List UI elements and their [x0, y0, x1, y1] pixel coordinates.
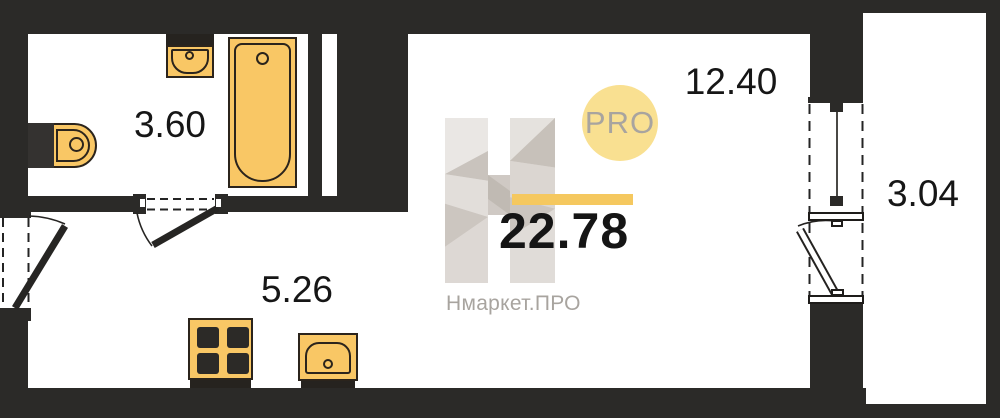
- stove-burner-icon: [227, 327, 249, 348]
- pro-badge: PRO: [582, 85, 658, 161]
- bathtub-fixture: [228, 37, 297, 188]
- bath-door-arc: [137, 213, 152, 246]
- kitchen-sink-base: [301, 381, 355, 388]
- floor-plan: 3.60 12.40 5.26 3.04 PRO 22.78 Нмаркет.П…: [0, 0, 1000, 418]
- kitchen-sink-outline: [305, 342, 351, 374]
- stove-burner-icon: [197, 327, 219, 348]
- kitchen-sink-drain-icon: [323, 359, 333, 369]
- bath-jamb-right-notch: [216, 199, 221, 207]
- stove-base: [190, 380, 251, 388]
- area-label-balcony: 3.04: [871, 173, 975, 215]
- washbasin-drain-icon: [185, 51, 194, 60]
- balcony-door-sill: [808, 295, 864, 304]
- stove-burner-icon: [227, 353, 249, 374]
- window-sill-notch: [831, 220, 843, 227]
- bath-door-leaf: [153, 208, 218, 245]
- entry-door-arc: [29, 216, 65, 224]
- balcony-door-hinge-notch: [831, 289, 844, 296]
- toilet-fixture: [50, 123, 97, 168]
- window-mullion-bottom-square: [830, 196, 843, 206]
- area-label-bathroom: 3.60: [118, 104, 222, 146]
- area-label-main-room: 12.40: [666, 61, 796, 103]
- window-mullion-top-square: [830, 103, 843, 112]
- toilet-tank: [28, 123, 54, 168]
- entry-door-leaf: [15, 226, 65, 308]
- balcony-door-leaf: [800, 230, 835, 293]
- bath-jamb-left-notch: [140, 199, 145, 207]
- logo-h-left-bar: [445, 118, 488, 283]
- washbasin-fixture: [166, 45, 214, 78]
- total-area-value: 22.78: [499, 203, 659, 259]
- balcony-door-arc: [798, 220, 835, 226]
- area-label-kitchen: 5.26: [245, 269, 349, 311]
- bathtub-drain-icon: [256, 52, 269, 65]
- stove-fixture: [188, 318, 253, 380]
- watermark-brand-text: Нмаркет.ПРО: [446, 292, 581, 316]
- kitchen-sink-fixture: [298, 333, 358, 381]
- washbasin-bracket: [166, 34, 214, 45]
- stove-burner-icon: [197, 353, 219, 374]
- toilet-drain-icon: [69, 137, 84, 152]
